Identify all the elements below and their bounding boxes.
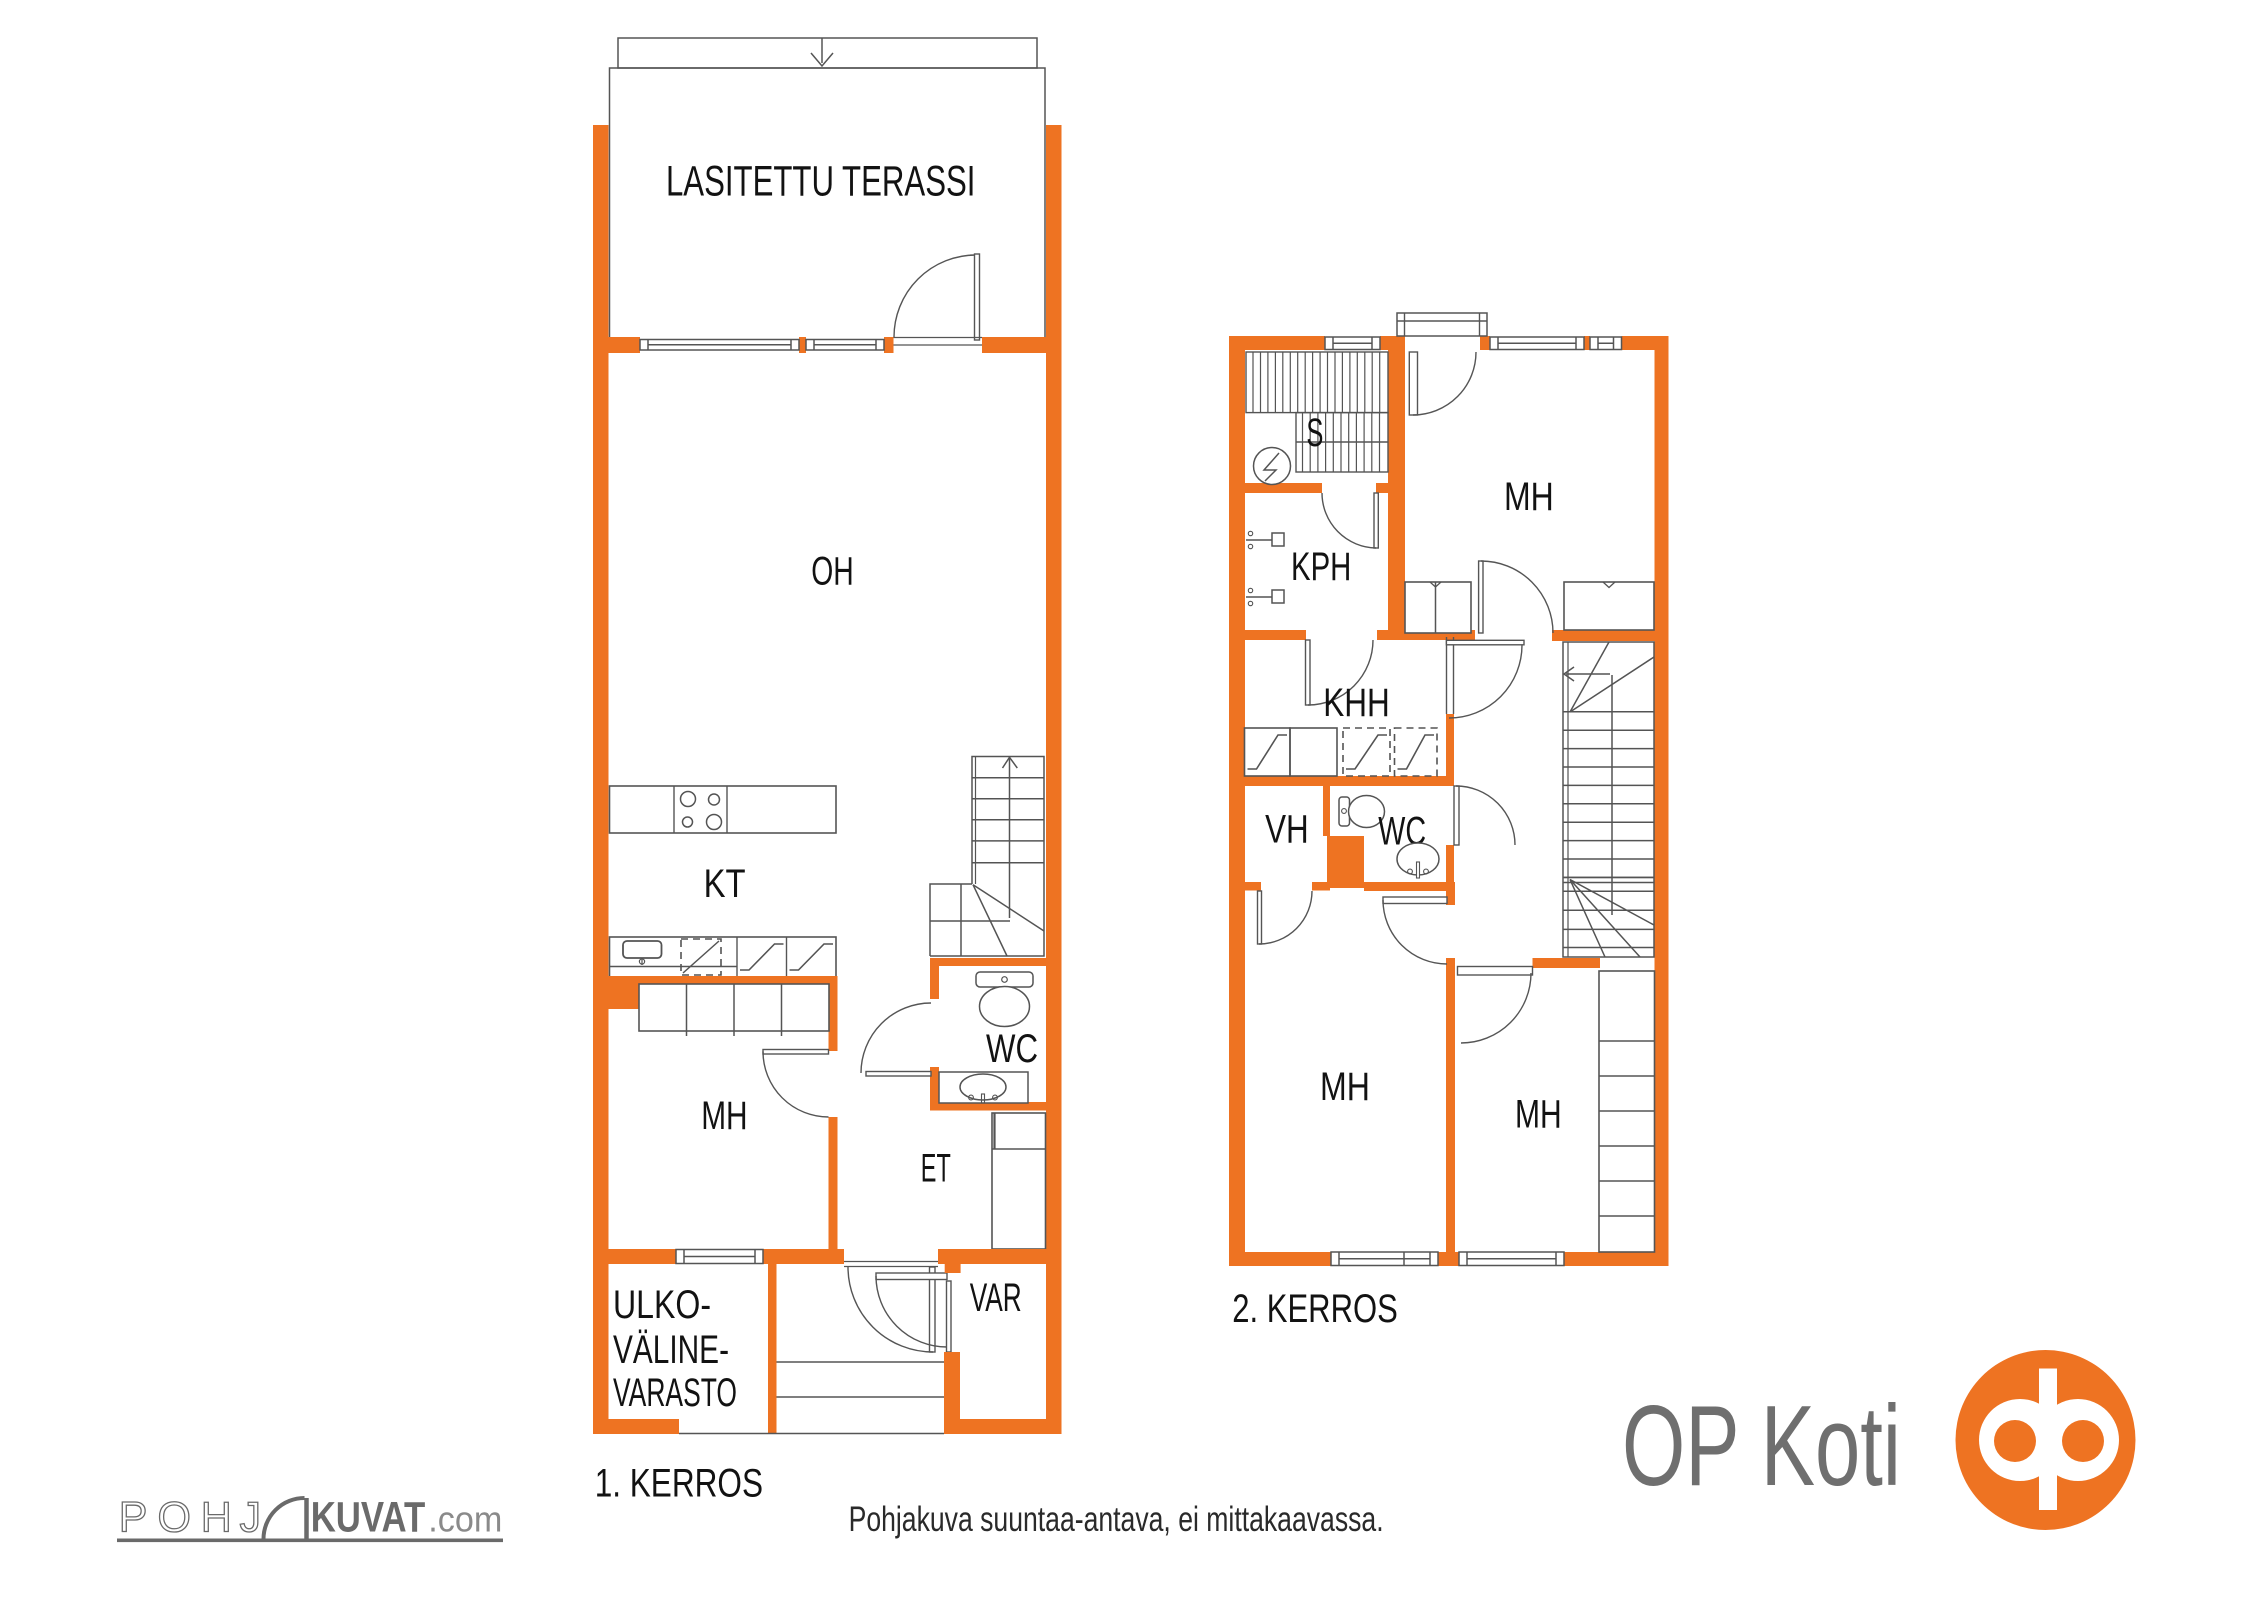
svg-text:VARASTO: VARASTO bbox=[613, 1371, 737, 1415]
svg-text:VÄLINE-: VÄLINE- bbox=[613, 1328, 729, 1372]
svg-text:VH: VH bbox=[1265, 807, 1309, 851]
svg-text:MH: MH bbox=[1320, 1065, 1370, 1109]
svg-text:S: S bbox=[1306, 411, 1323, 455]
svg-text:ET: ET bbox=[921, 1146, 951, 1190]
svg-text:ULKO-: ULKO- bbox=[613, 1283, 711, 1327]
svg-text:1. KERROS: 1. KERROS bbox=[595, 1462, 763, 1506]
svg-text:KPH: KPH bbox=[1291, 545, 1351, 589]
svg-text:KHH: KHH bbox=[1323, 681, 1390, 725]
svg-text:Pohjakuva suuntaa-antava, ei m: Pohjakuva suuntaa-antava, ei mittakaavas… bbox=[849, 1499, 1384, 1539]
svg-text:OH: OH bbox=[811, 550, 854, 594]
svg-text:P: P bbox=[119, 1494, 148, 1542]
svg-text:2. KERROS: 2. KERROS bbox=[1232, 1287, 1398, 1331]
svg-text:O: O bbox=[158, 1494, 191, 1542]
svg-text:OP Koti: OP Koti bbox=[1622, 1383, 1901, 1510]
svg-text:LASITETTU TERASSI: LASITETTU TERASSI bbox=[666, 159, 976, 206]
svg-text:KUVAT: KUVAT bbox=[311, 1494, 426, 1542]
svg-text:KT: KT bbox=[704, 862, 746, 906]
svg-text:MH: MH bbox=[701, 1094, 747, 1138]
svg-text:WC: WC bbox=[986, 1027, 1038, 1071]
svg-text:H: H bbox=[201, 1494, 232, 1542]
svg-text:J: J bbox=[240, 1494, 262, 1542]
svg-text:.com: .com bbox=[428, 1499, 502, 1540]
svg-text:MH: MH bbox=[1515, 1093, 1562, 1137]
svg-text:VAR: VAR bbox=[970, 1276, 1022, 1320]
svg-text:MH: MH bbox=[1504, 475, 1554, 519]
